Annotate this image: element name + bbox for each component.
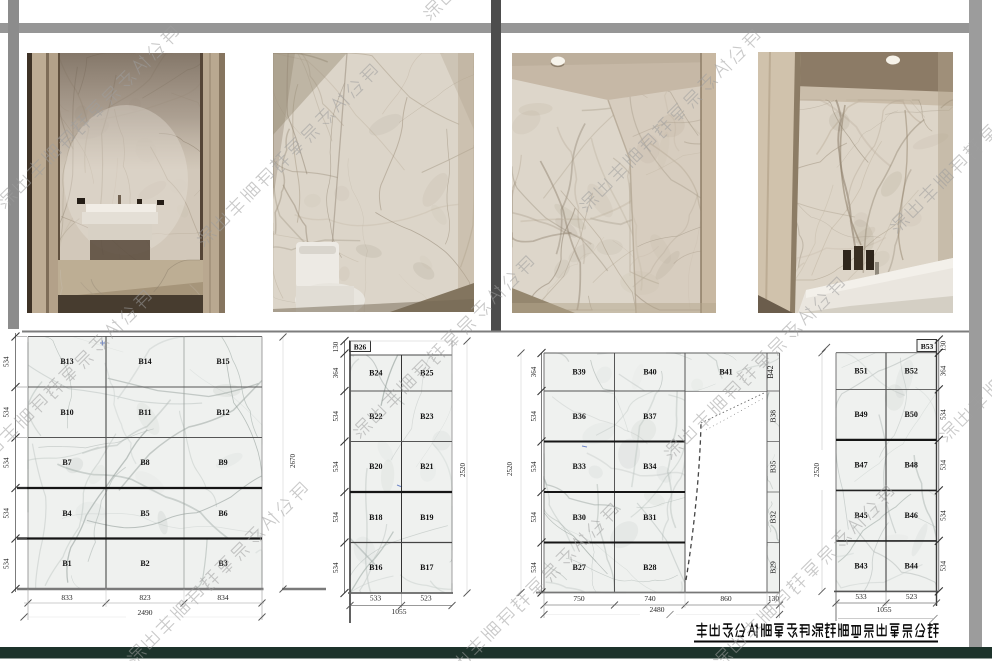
- svg-text:B8: B8: [140, 458, 149, 467]
- svg-text:B7: B7: [62, 458, 71, 467]
- svg-text:B6: B6: [218, 509, 227, 518]
- svg-text:B37: B37: [643, 412, 656, 421]
- svg-text:B10: B10: [60, 408, 73, 417]
- svg-text:534: 534: [332, 461, 340, 472]
- svg-text:B30: B30: [573, 513, 586, 522]
- svg-text:833: 833: [61, 593, 73, 602]
- svg-text:B17: B17: [420, 563, 433, 572]
- svg-text:130: 130: [332, 341, 340, 352]
- svg-text:534: 534: [3, 356, 11, 367]
- svg-text:834: 834: [217, 593, 229, 602]
- svg-text:B39: B39: [572, 368, 585, 377]
- svg-text:B49: B49: [854, 410, 867, 419]
- svg-text:534: 534: [530, 461, 538, 472]
- svg-text:364: 364: [332, 367, 340, 378]
- svg-text:B52: B52: [905, 367, 918, 376]
- svg-text:B44: B44: [905, 562, 918, 571]
- svg-text:534: 534: [940, 510, 948, 521]
- svg-text:B19: B19: [420, 513, 433, 522]
- svg-text:B18: B18: [369, 513, 382, 522]
- svg-text:B50: B50: [905, 410, 918, 419]
- svg-text:534: 534: [530, 562, 538, 573]
- svg-text:B45: B45: [854, 511, 867, 520]
- svg-text:823: 823: [139, 593, 151, 602]
- svg-text:2490: 2490: [138, 608, 153, 617]
- svg-text:B35: B35: [769, 460, 778, 473]
- svg-text:534: 534: [3, 406, 11, 417]
- svg-text:B29: B29: [769, 561, 778, 574]
- svg-text:534: 534: [332, 511, 340, 522]
- svg-text:2520: 2520: [813, 463, 821, 478]
- svg-text:2520: 2520: [506, 462, 514, 477]
- svg-text:B11: B11: [139, 408, 152, 417]
- svg-text:B23: B23: [420, 412, 433, 421]
- svg-text:B43: B43: [854, 562, 867, 571]
- svg-text:533: 533: [370, 594, 382, 603]
- svg-text:740: 740: [644, 594, 656, 603]
- svg-text:B31: B31: [643, 513, 656, 522]
- svg-text:B14: B14: [138, 357, 151, 366]
- svg-text:B48: B48: [905, 461, 918, 470]
- svg-text:B32: B32: [769, 511, 778, 524]
- svg-text:B27: B27: [573, 563, 586, 572]
- svg-text:750: 750: [573, 594, 585, 603]
- svg-text:B4: B4: [62, 509, 71, 518]
- svg-text:B15: B15: [216, 357, 229, 366]
- svg-text:B53: B53: [921, 342, 934, 351]
- svg-text:860: 860: [720, 594, 732, 603]
- svg-text:1055: 1055: [877, 605, 892, 614]
- svg-text:534: 534: [940, 459, 948, 470]
- svg-text:B1: B1: [62, 559, 71, 568]
- svg-text:B47: B47: [854, 461, 867, 470]
- svg-text:534: 534: [940, 560, 948, 571]
- svg-text:B41: B41: [719, 368, 732, 377]
- svg-text:B40: B40: [643, 368, 656, 377]
- svg-text:B12: B12: [216, 408, 229, 417]
- svg-text:523: 523: [420, 594, 432, 603]
- svg-text:534: 534: [332, 562, 340, 573]
- svg-text:B33: B33: [573, 462, 586, 471]
- svg-text:2670: 2670: [289, 454, 297, 469]
- svg-text:364: 364: [530, 366, 538, 377]
- svg-text:534: 534: [3, 457, 11, 468]
- svg-text:B24: B24: [369, 369, 382, 378]
- svg-text:1055: 1055: [392, 607, 407, 616]
- svg-text:2520: 2520: [459, 463, 467, 478]
- svg-text:B36: B36: [573, 412, 586, 421]
- svg-text:2480: 2480: [650, 605, 665, 614]
- svg-text:B21: B21: [420, 462, 433, 471]
- svg-text:B51: B51: [854, 367, 867, 376]
- svg-text:B34: B34: [643, 462, 656, 471]
- svg-text:534: 534: [940, 409, 948, 420]
- svg-text:B28: B28: [643, 563, 656, 572]
- svg-text:534: 534: [3, 558, 11, 569]
- svg-text:130: 130: [940, 340, 948, 351]
- svg-text:B20: B20: [369, 462, 382, 471]
- svg-text:B16: B16: [369, 563, 382, 572]
- svg-text:364: 364: [940, 365, 948, 376]
- svg-text:B5: B5: [140, 509, 149, 518]
- svg-text:B46: B46: [905, 511, 918, 520]
- svg-text:B2: B2: [140, 559, 149, 568]
- svg-text:B26: B26: [354, 343, 367, 352]
- svg-text:B38: B38: [769, 410, 778, 423]
- svg-text:523: 523: [906, 592, 918, 601]
- svg-text:B9: B9: [218, 458, 227, 467]
- svg-text:533: 533: [855, 592, 867, 601]
- svg-text:534: 534: [3, 507, 11, 518]
- svg-text:534: 534: [332, 410, 340, 421]
- svg-text:534: 534: [530, 511, 538, 522]
- svg-text:534: 534: [530, 410, 538, 421]
